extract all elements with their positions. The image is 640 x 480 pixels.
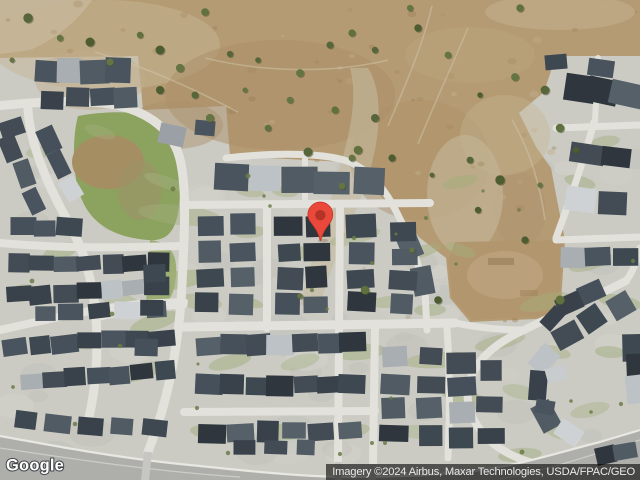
svg-text:Google: Google	[6, 457, 64, 475]
